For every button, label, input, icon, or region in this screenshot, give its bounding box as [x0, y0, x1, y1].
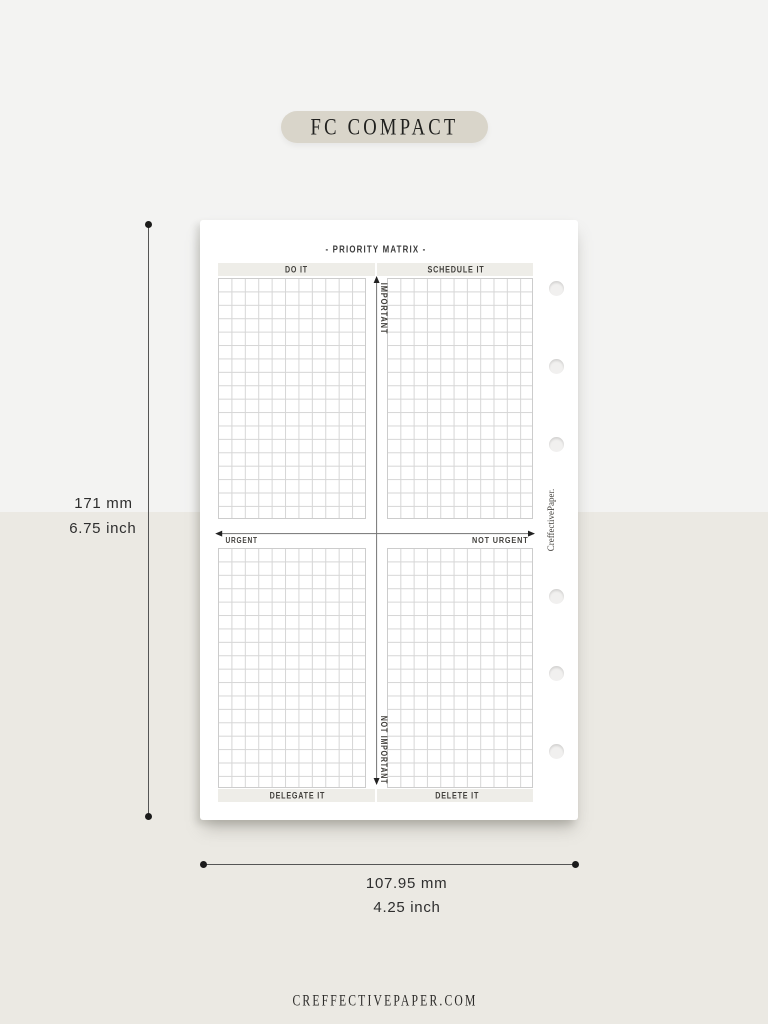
svg-text:FC COMPACT: FC COMPACT: [311, 115, 459, 140]
svg-text:SCHEDULE IT: SCHEDULE IT: [428, 265, 485, 275]
svg-text:URGENT: URGENT: [226, 535, 258, 545]
svg-text:- PRIORITY MATRIX -: - PRIORITY MATRIX -: [326, 245, 427, 256]
svg-text:NOT URGENT: NOT URGENT: [472, 535, 529, 545]
svg-text:CREFFECTIVEPAPER.COM: CREFFECTIVEPAPER.COM: [293, 993, 478, 1010]
svg-text:DELEGATE IT: DELEGATE IT: [270, 790, 326, 800]
svg-text:DELETE IT: DELETE IT: [435, 790, 479, 800]
svg-text:IMPORTANT: IMPORTANT: [379, 283, 389, 335]
svg-text:NOT IMPORTANT: NOT IMPORTANT: [379, 716, 389, 784]
svg-text:DO IT: DO IT: [285, 265, 308, 275]
